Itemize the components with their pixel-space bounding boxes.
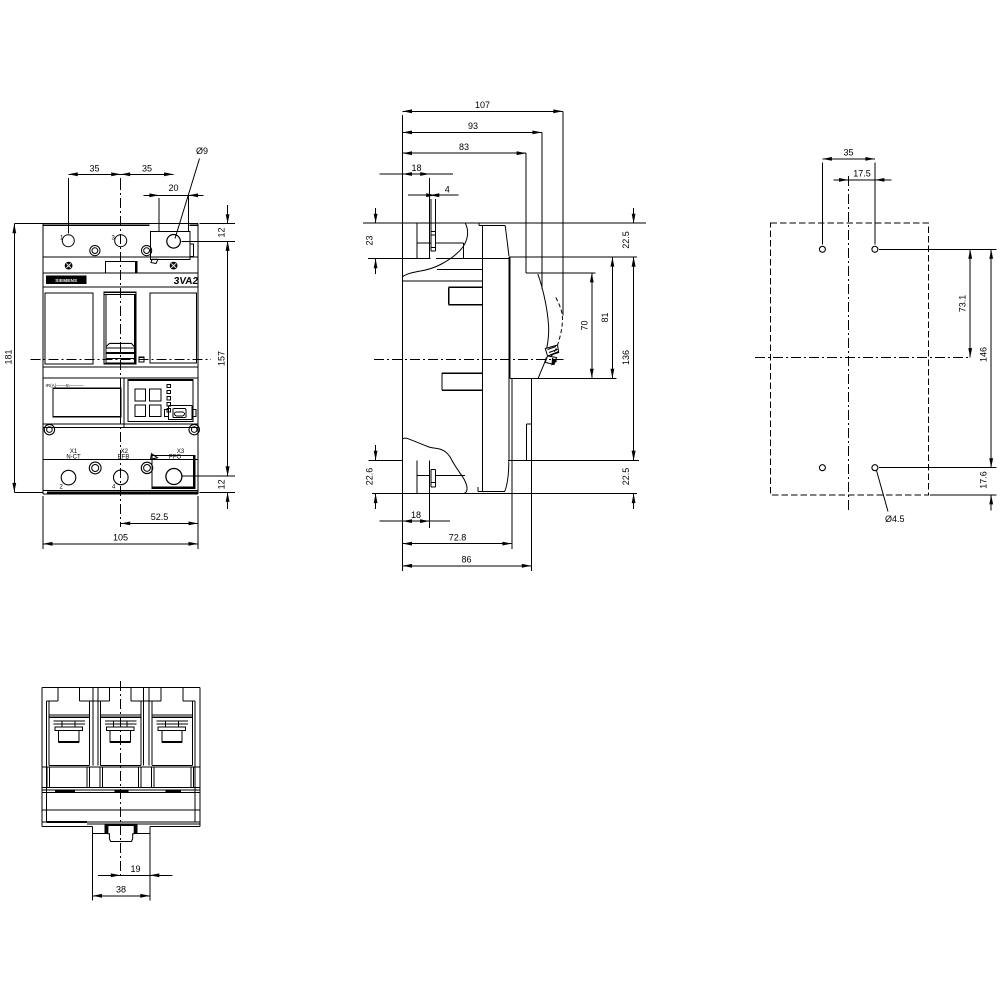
svg-text:18: 18 — [411, 163, 421, 173]
svg-text:17.5: 17.5 — [853, 169, 871, 179]
svg-text:12: 12 — [217, 227, 227, 237]
svg-text:17.6: 17.6 — [979, 471, 989, 489]
svg-text:Ø9: Ø9 — [196, 146, 208, 156]
svg-text:83: 83 — [459, 142, 469, 152]
svg-text:35: 35 — [89, 163, 99, 173]
svg-text:N-CT: N-CT — [66, 455, 81, 461]
svg-text:20: 20 — [168, 183, 178, 193]
svg-text:52.5: 52.5 — [151, 512, 169, 522]
svg-text:72.8: 72.8 — [449, 532, 467, 542]
svg-text:38: 38 — [116, 884, 126, 894]
svg-text:157: 157 — [217, 351, 227, 366]
svg-text:136: 136 — [621, 350, 631, 365]
svg-text:86: 86 — [461, 555, 471, 565]
svg-text:107: 107 — [475, 100, 490, 110]
svg-text:4: 4 — [445, 185, 450, 195]
svg-text:181: 181 — [3, 349, 13, 364]
svg-text:IR(A)——In———: IR(A)——In——— — [46, 383, 84, 388]
svg-text:22.6: 22.6 — [365, 468, 375, 486]
svg-text:35: 35 — [843, 148, 853, 158]
svg-text:73.1: 73.1 — [958, 295, 968, 313]
svg-text:19: 19 — [130, 864, 140, 874]
svg-text:22.5: 22.5 — [621, 231, 631, 249]
svg-text:70: 70 — [580, 320, 590, 330]
svg-text:22.5: 22.5 — [621, 468, 631, 486]
svg-text:23: 23 — [365, 235, 375, 245]
svg-text:105: 105 — [113, 532, 128, 542]
svg-text:93: 93 — [468, 121, 478, 131]
svg-text:EFB: EFB — [118, 455, 130, 461]
svg-text:18: 18 — [411, 510, 421, 520]
svg-text:SIEMENS: SIEMENS — [55, 278, 77, 283]
svg-text:3VA2: 3VA2 — [173, 276, 199, 287]
svg-text:Ø4.5: Ø4.5 — [885, 514, 905, 524]
svg-text:81: 81 — [600, 312, 610, 322]
svg-text:12: 12 — [217, 479, 227, 489]
svg-text:146: 146 — [979, 347, 989, 362]
svg-text:35: 35 — [142, 163, 152, 173]
